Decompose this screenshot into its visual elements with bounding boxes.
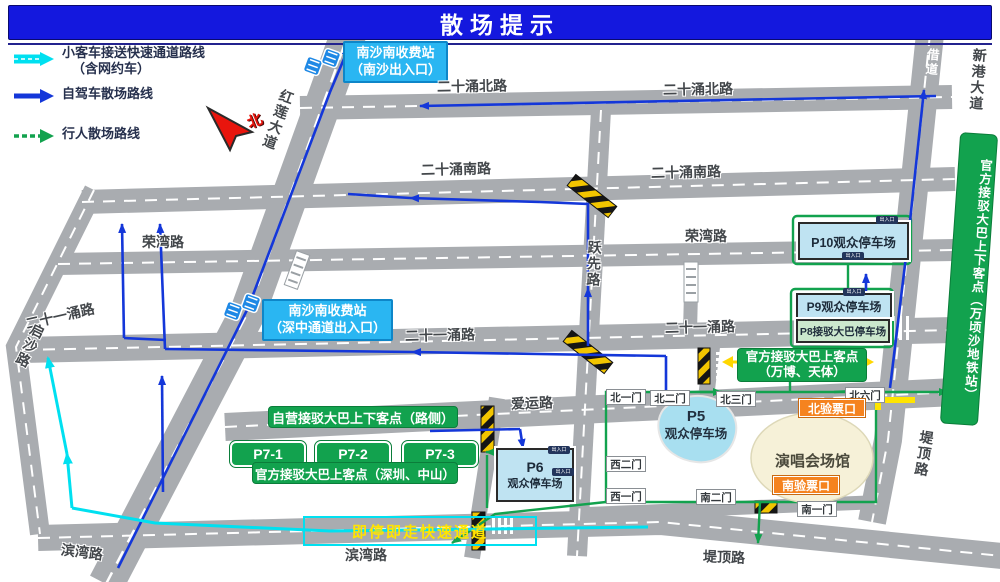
dispersal-map: 散场提示 小客车接送快速通道路线 （含网约车） 自驾车散场路线 行人散场路线 北…	[0, 0, 1000, 582]
toll-station-south-label: 南沙南收费站（深中通道出入口）	[262, 299, 393, 341]
road-label-diding-s: 堤顶路	[703, 546, 746, 567]
road-label-ershiyong-north-e: 二十涌北路	[663, 78, 733, 99]
road-label-ershiyong-south-e: 二十涌南路	[651, 161, 721, 183]
blue-selfdrive-arrow-icon	[12, 89, 56, 103]
parking-p9-badge: 出入口	[843, 288, 865, 296]
legend-express-label: 小客车接送快速通道路线 （含网约车）	[62, 45, 205, 78]
parking-p8: P8接驳大巴停车场	[796, 319, 890, 343]
road-label-ershiyiyong-e: 二十一涌路	[665, 316, 735, 338]
gate-west-2: 西二门	[606, 456, 646, 472]
stop-shenzhen-zhongshan: 官方接驳大巴上客点（深圳、中山）	[252, 462, 458, 484]
toll-station-north-label: 南沙南收费站（南沙出入口）	[343, 41, 448, 83]
gate-north-2: 北二门	[650, 390, 690, 406]
stop-wanbo: 官方接驳大巴上客点（万博、天体）	[737, 348, 867, 382]
page-title-bar: 散场提示	[8, 5, 992, 40]
parking-p10-badge2: 出入口	[842, 252, 864, 260]
gate-south-1: 南一门	[797, 501, 837, 517]
gate-west-1: 西一门	[606, 488, 646, 504]
venue-name: 演唱会场馆	[775, 450, 850, 471]
page-title: 散场提示	[440, 6, 560, 40]
road-label-ershiyong-north-w: 二十涌北路	[437, 75, 507, 96]
road-label-yuexian: 跃先路	[583, 240, 605, 289]
legend-selfdrive-label: 自驾车散场路线	[62, 86, 153, 102]
road-label-aiyun: 爱运路	[511, 392, 554, 413]
checkpoint-north: 北验票口	[799, 399, 865, 417]
road-label-ershiyiyong-m: 二十一涌路	[405, 324, 475, 346]
parking-p5-label: P5 观众停车场	[660, 408, 732, 442]
road-label-binwan-m: 滨湾路	[345, 545, 387, 565]
stop-roadside: 自营接驳大巴上下客点（路侧）	[268, 406, 458, 428]
parking-p9: P9观众停车场	[796, 293, 892, 319]
road-label-rongwan-w: 荣湾路	[142, 232, 184, 252]
cyan-express-arrow-icon	[12, 52, 56, 66]
parking-p10-badge: 出入口	[876, 216, 898, 224]
legend-pedestrian-label: 行人散场路线	[62, 126, 140, 142]
checkpoint-south: 南验票口	[773, 476, 839, 494]
parking-p6-badge2: 出入口	[552, 468, 574, 476]
express-lane-label: 即停即走快速通道	[303, 516, 537, 546]
parking-p6-badge: 出入口	[548, 446, 570, 454]
road-label-ershiyong-south-w: 二十涌南路	[421, 158, 491, 180]
gate-north-1: 北一门	[606, 389, 646, 405]
gate-south-2: 南二门	[696, 489, 736, 505]
road-label-rongwan-e: 荣湾路	[685, 226, 727, 246]
gate-north-3: 北三门	[716, 391, 756, 407]
green-pedestrian-arrow-icon	[12, 129, 56, 143]
road-label-jiedao: 借道	[921, 47, 942, 78]
